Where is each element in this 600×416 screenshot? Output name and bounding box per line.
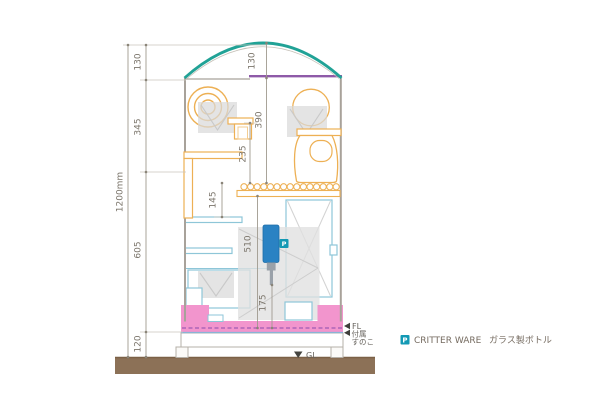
cage-elevation-diagram: P <box>0 0 600 416</box>
slat-label-line2: すのこ <box>352 338 375 347</box>
ground-bar <box>115 358 375 375</box>
dim-145: 145 <box>209 191 219 208</box>
right-perch-board <box>297 129 341 136</box>
shelf-middle <box>185 248 232 254</box>
side-ladder-panel <box>184 159 193 219</box>
stand-leg-left <box>176 347 188 358</box>
feeder-box <box>235 124 252 139</box>
dim-235: 235 <box>239 145 249 162</box>
slat-arrow-icon <box>344 330 350 336</box>
legend: P CRITTER WARE ガラス製ボトル <box>401 334 552 346</box>
dim-left-roof: 130 <box>134 53 144 70</box>
gray-box-lower-left <box>198 271 234 298</box>
legend-item: ガラス製ボトル <box>489 334 552 346</box>
stand-leg-right <box>331 347 343 358</box>
dim-390: 390 <box>255 111 265 128</box>
upper-shelf-board <box>184 152 242 159</box>
bottle-p-badge-label: P <box>282 240 287 248</box>
dim-left-upper: 345 <box>134 118 144 135</box>
fl-arrow-icon <box>344 323 350 329</box>
bottle-body <box>263 225 279 263</box>
dim-510: 510 <box>244 235 254 252</box>
dim-left-lower: 605 <box>134 241 144 258</box>
roof-arc <box>185 43 342 78</box>
elevation-drawing-canvas: P <box>0 0 600 416</box>
perch-dowels <box>237 184 340 197</box>
perch-base-board <box>237 191 340 197</box>
tray-band <box>181 321 343 333</box>
dim-175: 175 <box>259 294 269 311</box>
dim-left-base: 120 <box>134 335 144 352</box>
bottle-tube <box>270 271 273 286</box>
bottle-nozzle <box>267 263 276 271</box>
ground <box>115 358 375 375</box>
shelf-upper <box>185 217 242 223</box>
dim-roof-rise: 130 <box>248 52 258 69</box>
tray-riser-right <box>318 305 344 323</box>
dim-total-label: 1200mm <box>116 172 126 212</box>
hay-feeder-body <box>294 136 337 183</box>
house-side-tab <box>330 245 337 255</box>
legend-p-badge-label: P <box>402 337 407 345</box>
gl-label: GL <box>306 351 317 360</box>
base-frame <box>181 333 343 347</box>
legend-brand: CRITTER WARE <box>414 336 482 346</box>
roof-inner-arc <box>187 47 339 79</box>
tray-step <box>208 315 223 322</box>
stand-base <box>176 333 343 358</box>
house-step <box>285 302 312 320</box>
